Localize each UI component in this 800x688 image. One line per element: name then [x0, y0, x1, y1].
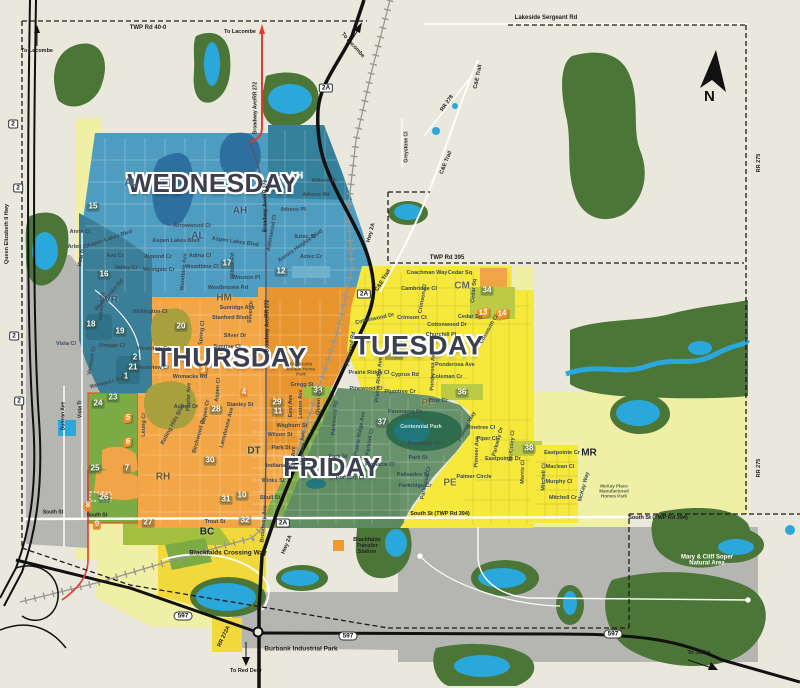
street-label: Park St — [272, 446, 291, 452]
street-label: Churchill Pl — [426, 333, 457, 339]
zone-badge: 25 — [89, 465, 102, 474]
zone-badge: 2 — [131, 354, 139, 363]
hwy-shield: 597 — [604, 629, 623, 638]
zone-code: DT — [247, 447, 260, 458]
zone-code: BC — [200, 528, 214, 539]
zone-code: HM — [216, 294, 232, 305]
street-label: Waghorn St — [277, 424, 308, 430]
hwy-shield: 597 — [339, 631, 358, 640]
zone-badge: 27 — [142, 519, 155, 528]
place-label: Mary & Cliff Soper Natural Area — [674, 555, 740, 568]
street-label: Arrowwood Cl — [173, 224, 210, 230]
street-label: Aspen Cl — [215, 378, 223, 402]
street-label: Shull St — [260, 496, 280, 502]
street-label: Wellington Cl — [132, 310, 167, 316]
street-label: Park St — [409, 456, 428, 462]
road-label: To Joffre — [687, 651, 710, 657]
street-label: Anna Cl — [70, 230, 91, 236]
place-label: Centennial Park — [400, 425, 442, 431]
zone-code: AH — [233, 207, 247, 218]
road-label: TWP Rd 395 — [430, 255, 465, 261]
road-label: South St — [43, 510, 64, 515]
street-label: Cottonwood Dr — [427, 323, 467, 329]
street-label: Leung Cl — [142, 413, 149, 437]
hwy-shield: 2A — [319, 83, 333, 92]
street-label: Adina Cl — [189, 254, 211, 260]
road-label: South St — [87, 513, 108, 518]
street-label: Panorama Dr — [388, 410, 422, 416]
street-label: Broadway Ave — [260, 505, 269, 543]
zone-badge: 7 — [123, 465, 131, 474]
road-label: Broadway Ave/RR 272 — [263, 180, 268, 232]
street-label: Murphy Cl — [546, 480, 573, 486]
road-label: South St (TWP Rd 394) — [410, 512, 469, 518]
hwy-shield: 2 — [14, 396, 24, 405]
zone-badge: 32 — [239, 517, 252, 526]
street-label: Aspen Lakes Blvd — [152, 239, 199, 245]
zone-badge: 4 — [240, 389, 248, 398]
hwy-shield: 2 — [8, 119, 18, 128]
road-label: Queen Elizabeth II Hwy — [5, 204, 11, 264]
street-label: Coleman Cr — [432, 375, 463, 381]
street-label: McKay Way — [578, 472, 592, 503]
road-label: Lakeside Sergeant Rd — [515, 15, 578, 21]
zone-badge: 9 — [93, 521, 101, 530]
street-label: Vista Cl — [56, 342, 76, 348]
zone-badge: 19 — [114, 328, 127, 337]
street-label: Pine Cr — [428, 399, 447, 405]
street-label: Eastpointe Cr — [544, 451, 580, 457]
street-label: Vermont Cl — [88, 346, 99, 376]
street-label: Cedar Sq — [458, 315, 482, 321]
place-label: Burbank Industrial Park — [264, 645, 337, 652]
zone-badge: 37 — [376, 419, 389, 428]
street-label: Ponderosa Ave — [435, 363, 475, 369]
street-label: Aztec Cr — [300, 255, 322, 261]
hwy-shield: 2A — [357, 289, 371, 298]
road-label: To Lacombe — [21, 49, 53, 55]
street-label: Pioneer Ave — [474, 436, 481, 468]
street-label: Eastpointe Dr — [485, 457, 521, 463]
street-label: Silver Dr — [248, 300, 256, 323]
road-label: RR 278 — [440, 95, 456, 114]
street-label: Athens Pl — [280, 208, 305, 214]
street-label: Leston Ave — [299, 389, 305, 418]
road-label: Broadway Ave/RR 272 — [265, 300, 270, 352]
street-label: Westview Cr — [137, 366, 170, 372]
road-label: Duncan Ave — [61, 402, 66, 431]
road-label: Greystone Cl — [404, 131, 409, 162]
north-label: N — [704, 88, 715, 105]
street-label: Ponderosa Ave — [430, 351, 437, 391]
road-label: TWP Rd 40-0 — [130, 25, 167, 31]
street-label: Womacks Rd — [90, 377, 125, 392]
zone-badge: 23 — [107, 394, 120, 403]
street-label: Valley Cr — [114, 266, 137, 272]
day-label: WEDNESDAY — [127, 169, 298, 197]
street-label: Indiana St — [266, 464, 292, 470]
street-label: Gregg St — [290, 383, 313, 389]
street-label: Athens Pl — [311, 179, 336, 185]
street-label: Woodbine Cl — [185, 265, 219, 271]
road-label: RR 275 — [757, 154, 763, 173]
street-label: Stanford Blvd — [212, 316, 248, 322]
street-label: Silver Dr — [224, 334, 247, 340]
street-label: Westgate Cr — [143, 268, 175, 274]
road-label: RR 272A — [218, 625, 233, 648]
zone-badge: 28 — [210, 406, 223, 415]
road-label: Vista Tr — [78, 400, 83, 418]
hwy-shield: 2 — [13, 183, 23, 192]
day-label: TUESDAY — [354, 331, 484, 360]
street-label: Sunrise Cl — [213, 345, 240, 351]
numbered-marker: 6 — [124, 437, 133, 447]
zone-badge: 30 — [204, 457, 217, 466]
place-label: McKay Place Manufactured Homes Park — [593, 485, 635, 500]
street-label: Valmont St — [99, 293, 107, 322]
street-label: Morris Cl — [521, 460, 528, 484]
street-label: Arlen Cl — [67, 245, 88, 251]
hwy-shield: 597 — [174, 611, 193, 620]
street-label: Aspen Lakes Blvd — [211, 237, 259, 249]
zone-code: AL — [124, 179, 137, 190]
road-label: Vista Tr — [78, 249, 86, 268]
place-label: Blackfalds Mobile Home Park — [283, 363, 319, 378]
zone-code: MR — [581, 449, 597, 460]
street-label: Westview Cr — [137, 347, 170, 353]
zone-badge: 31 — [220, 496, 233, 505]
zone-code: CM — [454, 282, 470, 293]
street-label: Pondside Cr — [408, 442, 440, 448]
street-label: Cyprus Rd — [391, 373, 419, 379]
street-label: Wilson St — [267, 433, 292, 439]
street-label: Winks St — [261, 479, 284, 485]
zone-code: AH — [289, 172, 303, 183]
street-label: Crimson Ct — [397, 316, 427, 322]
street-label: Mitchell Cl — [542, 463, 549, 491]
street-label: Parkwood Cr — [421, 466, 434, 500]
street-label: Highway Ave — [300, 431, 307, 465]
zone-code: RH — [156, 473, 170, 484]
road-label: Hwy 2A — [367, 223, 378, 244]
street-label: Trout St — [205, 520, 226, 526]
zone-badge: 26 — [98, 494, 111, 503]
street-label: Birchwood Dr — [192, 418, 207, 454]
collection-day-zone-map: WEDNESDAYTHURSDAYTUESDAYFRIDAYALAHAHALVR… — [0, 0, 800, 688]
street-label: Pinewood Cl — [350, 387, 383, 393]
road-label: Hwy 2A — [282, 535, 295, 556]
street-label: Park St — [329, 455, 348, 461]
street-label: Aspen Lakes Blvd — [87, 230, 134, 250]
zone-badge: 18 — [85, 321, 98, 330]
place-label: Blackfalds Transfer Station — [349, 538, 385, 556]
zone-code: PE — [443, 479, 456, 490]
hwy-shield: 2 — [9, 331, 19, 340]
road-label: Broadway Ave/RR 272 — [253, 82, 258, 134]
zone-badge: 12 — [275, 268, 288, 277]
street-label: Westbrooke Rd — [208, 286, 248, 292]
hwy-shield: 2A — [276, 518, 290, 527]
street-label: Ava Cr — [106, 254, 124, 260]
zone-badge: 24 — [92, 400, 105, 409]
road-label: To Red Deer — [230, 669, 262, 675]
place-label: Blackfalds Crossing Way — [189, 549, 266, 556]
street-label: Plumtree Cr — [384, 390, 415, 396]
street-label: Mitchell Cr — [549, 496, 577, 502]
street-label: Maclean Cl — [546, 465, 575, 471]
map-labels-layer: WEDNESDAYTHURSDAYTUESDAYFRIDAYALAHAHALVR… — [0, 0, 800, 688]
road-label: C&E Trail — [375, 269, 393, 293]
street-label: East Ave — [292, 447, 298, 470]
road-label: RR 275 — [757, 459, 763, 478]
road-label: South St (TWP Rd 394) — [628, 516, 687, 522]
street-label: Portway Cl — [336, 476, 364, 482]
road-label: C&E Trail — [440, 151, 455, 176]
street-label: Parkwood Rd — [332, 400, 341, 436]
street-label: Winston Pl — [232, 276, 260, 282]
street-label: Coachman Way — [407, 271, 448, 277]
road-label: C&E Trail — [474, 64, 485, 89]
zone-badge: 34 — [481, 287, 494, 296]
zone-badge: 16 — [98, 271, 111, 280]
street-label: Vintage Cl — [99, 344, 126, 350]
street-label: Athens Rd — [302, 193, 330, 199]
street-label: Cedar Sq — [471, 279, 479, 304]
zone-badge: 20 — [175, 323, 188, 332]
street-label: Pinnacle Cl — [365, 463, 395, 469]
road-label: To Lacombe — [339, 32, 365, 60]
street-label: Palmer Circle — [456, 475, 491, 481]
street-label: Queen Cl — [316, 391, 324, 416]
street-label: Cambridge Cl — [401, 287, 437, 293]
zone-badge: 38 — [523, 445, 536, 454]
street-label: Prairie Ridge Cl — [349, 371, 390, 377]
zone-badge: 11 — [272, 408, 284, 417]
street-label: Cottonwood Dr — [355, 313, 395, 327]
zone-badge: 8 — [84, 502, 92, 511]
street-label: Cedar Sq — [448, 271, 472, 277]
street-label: Womacks Rd — [173, 375, 207, 381]
zone-badge: 10 — [236, 492, 249, 501]
numbered-marker: 5 — [124, 413, 133, 423]
zone-badge: 36 — [456, 389, 469, 398]
street-label: East Ave — [289, 395, 295, 418]
road-label: To Lacombe — [224, 30, 256, 36]
street-label: Aldenwood Cl — [267, 214, 279, 251]
zone-badge: 15 — [87, 203, 100, 212]
street-label: Almond Cr — [144, 255, 172, 261]
